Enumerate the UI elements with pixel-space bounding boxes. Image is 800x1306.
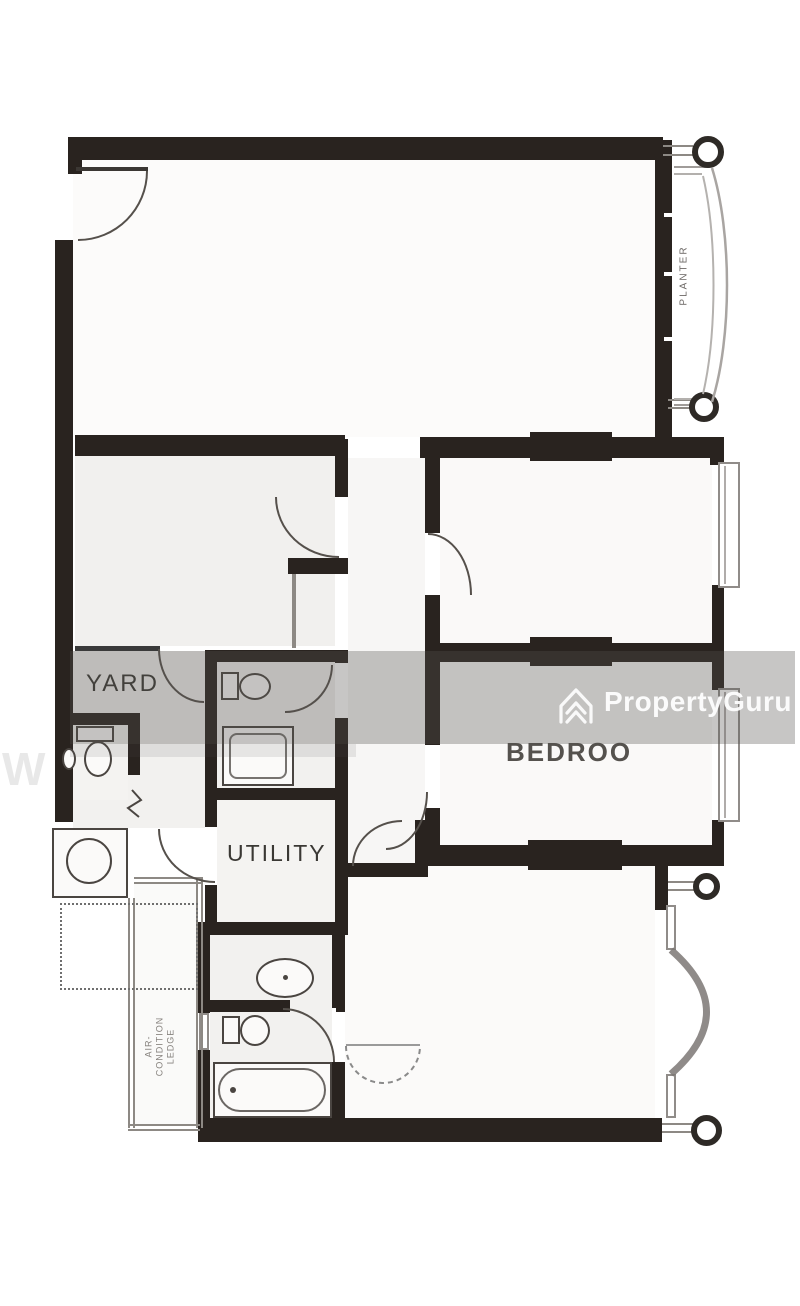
watermark-band-fade — [70, 744, 356, 757]
dashed-wardrobe-arc — [346, 1046, 420, 1083]
floor-plan: YARD UTILITY BEDROO PLANTER AIR- CONDITI… — [0, 0, 800, 1306]
watermark-partial-text: W — [2, 742, 45, 796]
utility-label: UTILITY — [227, 840, 327, 867]
aircon-ledge-line1: AIR- — [144, 987, 155, 1107]
aircon-ledge-line2: CONDITION — [155, 987, 166, 1107]
planter-label: PLANTER — [679, 228, 690, 324]
aircon-ledge-label: AIR- CONDITION LEDGE — [144, 987, 177, 1107]
bay-window-curve — [671, 950, 707, 1074]
door-break-zigzag — [128, 790, 141, 817]
planter-inner-curve — [703, 176, 714, 394]
propertyguru-chevron-icon — [554, 680, 598, 733]
aircon-ledge-line3: LEDGE — [166, 987, 177, 1107]
watermark-brand-text: PropertyGuru — [604, 686, 792, 718]
